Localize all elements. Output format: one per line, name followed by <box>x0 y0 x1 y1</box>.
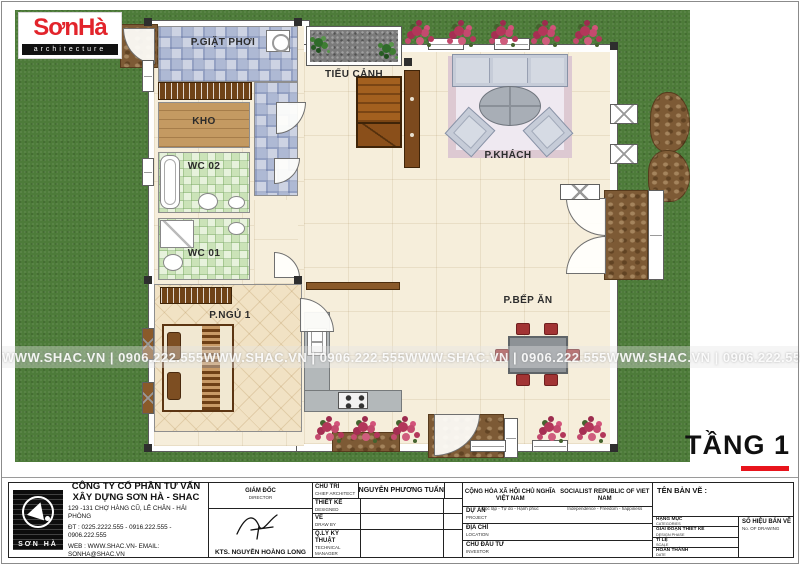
drawing-meta-row: HẠNG MỤC CATEGORIES <box>653 517 738 527</box>
republic-vi: CỘNG HÒA XÃ HỘI CHỦ NGHĨA VIỆT NAM Độc l… <box>463 483 558 506</box>
column-marker <box>294 276 302 284</box>
drawing-label-en: DESIGN PHASE <box>656 533 738 537</box>
logo-dot <box>45 516 50 521</box>
company-logo-text: SƠN HÀ <box>13 541 63 548</box>
drawing-label-en: DATE <box>656 553 738 557</box>
flower-bush <box>496 26 506 36</box>
drawing-label-en: SCALE <box>656 543 738 547</box>
staff-label-en: DESIGNED <box>315 507 360 513</box>
project-label-en: LOCATION <box>466 532 652 538</box>
bed <box>162 324 234 412</box>
project-label-en: PROJECT <box>466 515 652 521</box>
shelf-unit <box>158 82 252 100</box>
bed-runner <box>202 326 220 410</box>
project-label-en: INVESTOR <box>466 549 652 555</box>
title-block: SƠN HÀ CÔNG TY CỔ PHẦN TƯ VẤN XÂY DỰNG S… <box>8 482 794 558</box>
window <box>610 104 638 124</box>
watermark-text: WWW.SHAC.VN | 0906.222.555 <box>607 350 800 365</box>
director-panel: GIÁM ĐỐC DIRECTOR KTS. NGUYỄN HOÀNG LONG <box>209 483 313 557</box>
room-label-bedroom: P.NGỦ 1 <box>160 310 300 321</box>
wardrobe <box>160 287 232 304</box>
window <box>610 144 638 164</box>
director-label-en: DIRECTOR <box>209 495 312 501</box>
director-name: KTS. NGUYỄN HOÀNG LONG <box>209 549 312 556</box>
room-label-garden: TIỂU CẢNH <box>306 69 402 80</box>
column-marker <box>144 276 152 284</box>
staff-value <box>361 514 444 529</box>
project-row: CHỦ ĐẦU TƯ INVESTOR <box>463 541 652 557</box>
watermark-text: WWW.SHAC.VN | 0906.222.555 <box>204 350 406 365</box>
company-name-line1: CÔNG TY CỔ PHẦN TƯ VẤN <box>68 481 204 492</box>
drawing-meta: HẠNG MỤC CATEGORIES GIAI ĐOẠN THIẾT KẾ D… <box>653 517 793 557</box>
brand-subtitle: architecture <box>22 44 118 55</box>
company-name-line2: XÂY DỰNG SƠN HÀ - SHAC <box>68 492 204 503</box>
company-address: 129 -131 CHỢ HÀNG CŨ, LÊ CHÂN - HẢI PHÒN… <box>68 505 204 522</box>
staff-label-vi: THIẾT KẾ <box>315 500 360 507</box>
coffee-table <box>479 86 541 126</box>
chair <box>516 323 530 335</box>
drawing-meta-row: HOÀN THÀNH DATE <box>653 548 738 557</box>
terrace <box>332 432 400 452</box>
project-row: DỰ ÁN PROJECT <box>463 507 652 524</box>
project-label-vi: CHỦ ĐẦU TƯ <box>466 542 652 549</box>
window <box>142 158 154 186</box>
project-label-vi: DỰ ÁN <box>466 508 652 515</box>
plant <box>382 44 391 53</box>
staff-value <box>361 530 444 557</box>
staff-label-en: CHIEF ARCHITECT <box>315 491 358 497</box>
staff-label-vi: CHỦ TRÌ <box>315 484 358 491</box>
sofa-cushion <box>493 58 527 83</box>
staff-row: VẼ DRAW BY <box>313 514 462 530</box>
window <box>142 60 154 92</box>
room-label-laundry: P.GIẶT PHƠI <box>168 37 278 48</box>
brand-name: SơnHà <box>19 13 121 43</box>
republic-header: CỘNG HÒA XÃ HỘI CHỦ NGHĨA VIỆT NAM Độc l… <box>463 483 652 507</box>
company-web: WEB : WWW.SHAC.VN- EMAIL: SONHA@SHAC.VN <box>68 543 204 560</box>
toilet-icon <box>198 193 218 210</box>
company-panel: SƠN HÀ CÔNG TY CỔ PHẦN TƯ VẤN XÂY DỰNG S… <box>9 483 209 557</box>
entrance-steps <box>648 190 664 280</box>
flower-bush <box>584 422 594 432</box>
flower-bush <box>398 422 408 432</box>
staff-extra-cell <box>444 514 462 529</box>
room-label-storage: KHO <box>158 116 250 127</box>
drawing-meta-rows: HẠNG MỤC CATEGORIES GIAI ĐOẠN THIẾT KẾ D… <box>653 517 739 557</box>
chair <box>544 374 558 386</box>
window <box>560 184 600 200</box>
staff-value <box>361 499 444 514</box>
sink-icon <box>228 196 245 209</box>
column-marker <box>404 58 412 66</box>
porch-entrance <box>604 190 648 280</box>
floor-title-underline <box>741 466 789 471</box>
flower-bush <box>544 422 554 432</box>
drawing-number-label-en: No. OF DRAWING <box>742 526 793 532</box>
staff-extra-cell <box>444 499 462 514</box>
director-label-vi: GIÁM ĐỐC <box>209 488 312 495</box>
stair-landing <box>356 122 402 148</box>
column-marker <box>144 18 152 26</box>
column-marker <box>294 18 302 26</box>
flower-bush <box>358 422 368 432</box>
flower-bush <box>454 26 464 36</box>
director-header: GIÁM ĐỐC DIRECTOR <box>209 483 312 509</box>
window <box>532 440 568 452</box>
republic-en: SOCIALIST REPUBLIC OF VIET NAM Independe… <box>558 483 653 506</box>
window <box>470 440 506 452</box>
republic-en-line1: SOCIALIST REPUBLIC OF VIET NAM <box>558 486 653 503</box>
staff-panel: CHỦ TRÌ CHIEF ARCHITECT NGUYỄN PHƯƠNG TU… <box>313 483 463 557</box>
company-info: CÔNG TY CỔ PHẦN TƯ VẤN XÂY DỰNG SƠN HÀ -… <box>68 481 204 560</box>
plant <box>314 38 323 47</box>
floor-title: TẦNG 1 <box>620 430 790 461</box>
flower-bush <box>322 422 332 432</box>
kitchen-upper-cabinet <box>306 282 400 290</box>
pillow <box>167 372 181 400</box>
staff-label-en: TECHNICAL MANAGER <box>315 545 360 557</box>
watermark-text: WWW.SHAC.VN | 0906.222.555 <box>405 350 607 365</box>
project-label-vi: ĐỊA CHỈ <box>466 525 652 532</box>
drawing-panel: TÊN BẢN VẼ : HẠNG MỤC CATEGORIES GIAI ĐO… <box>653 483 793 557</box>
column-marker <box>610 444 618 452</box>
staff-row: Q.LÝ KỸ THUẬT TECHNICAL MANAGER <box>313 530 462 557</box>
sofa-cushion <box>531 58 564 83</box>
flower-bush <box>580 26 590 36</box>
room-label-wc1: WC 01 <box>158 248 250 259</box>
chair <box>544 323 558 335</box>
drawing-meta-row: TỈ LỆ SCALE <box>653 538 738 548</box>
staff-label-en: DRAW BY <box>315 522 360 528</box>
flower-bush <box>538 26 548 36</box>
republic-panel: CỘNG HÒA XÃ HỘI CHỦ NGHĨA VIỆT NAM Độc l… <box>463 483 653 557</box>
staff-label-vi: VẼ <box>315 515 360 522</box>
tree-canopy <box>650 92 690 152</box>
drawing-label-en: CATEGORIES <box>656 522 738 526</box>
window <box>428 38 464 50</box>
room-label-kitchen: P.BẾP ĂN <box>458 295 598 306</box>
sofa <box>452 54 568 87</box>
south-steps <box>504 418 518 458</box>
staff-value: NGUYỄN PHƯƠNG TUẤN <box>359 483 445 498</box>
drawing-number-label-vi: SỐ HIỆU BẢN VẼ <box>742 519 793 526</box>
divider <box>2 477 798 478</box>
staff-row: CHỦ TRÌ CHIEF ARCHITECT NGUYỄN PHƯƠNG TU… <box>313 483 462 499</box>
sink-icon <box>228 222 245 235</box>
staff-extra-cell <box>444 530 462 557</box>
company-logo: SƠN HÀ <box>13 490 63 550</box>
drawing-title-label: TÊN BẢN VẼ : <box>653 483 793 517</box>
staircase <box>356 76 402 124</box>
staff-label-vi: Q.LÝ KỸ THUẬT <box>315 531 360 545</box>
sofa-cushion <box>456 58 490 83</box>
room-label-living: P.KHÁCH <box>438 150 578 161</box>
column-marker <box>144 444 152 452</box>
hall-cabinet <box>404 70 420 168</box>
drawing-number-cell: SỐ HIỆU BẢN VẼ No. OF DRAWING <box>739 517 793 557</box>
republic-vi-line1: CỘNG HÒA XÃ HỘI CHỦ NGHĨA VIỆT NAM <box>463 486 558 503</box>
drawing-meta-row: GIAI ĐOẠN THIẾT KẾ DESIGN PHASE <box>653 527 738 537</box>
chair <box>516 374 530 386</box>
watermark-band: WWW.SHAC.VN | 0906.222.555 WWW.SHAC.VN |… <box>2 346 798 368</box>
staff-row: THIẾT KẾ DESIGNED <box>313 499 462 515</box>
stove-icon <box>338 392 368 409</box>
column-marker <box>610 42 618 50</box>
staff-extra-cell <box>445 483 462 498</box>
brand-logo: SơnHà architecture <box>18 12 122 59</box>
signature-icon <box>233 510 289 540</box>
director-signature: KTS. NGUYỄN HOÀNG LONG <box>209 509 312 557</box>
window <box>142 382 154 414</box>
window <box>494 38 530 50</box>
room-label-wc2: WC 02 <box>158 161 250 172</box>
floor-plan-sheet: P.GIẶT PHƠI TIỂU CẢNH KHO WC 02 WC 01 P.… <box>0 0 800 565</box>
company-phone: ĐT : 0225.2222.555 - 0916.222.555 - 0906… <box>68 524 204 541</box>
flower-bush <box>412 26 422 36</box>
project-row: ĐỊA CHỈ LOCATION <box>463 524 652 541</box>
watermark-text: WWW.SHAC.VN | 0906.222.555 <box>2 350 204 365</box>
shower-icon <box>160 220 194 248</box>
